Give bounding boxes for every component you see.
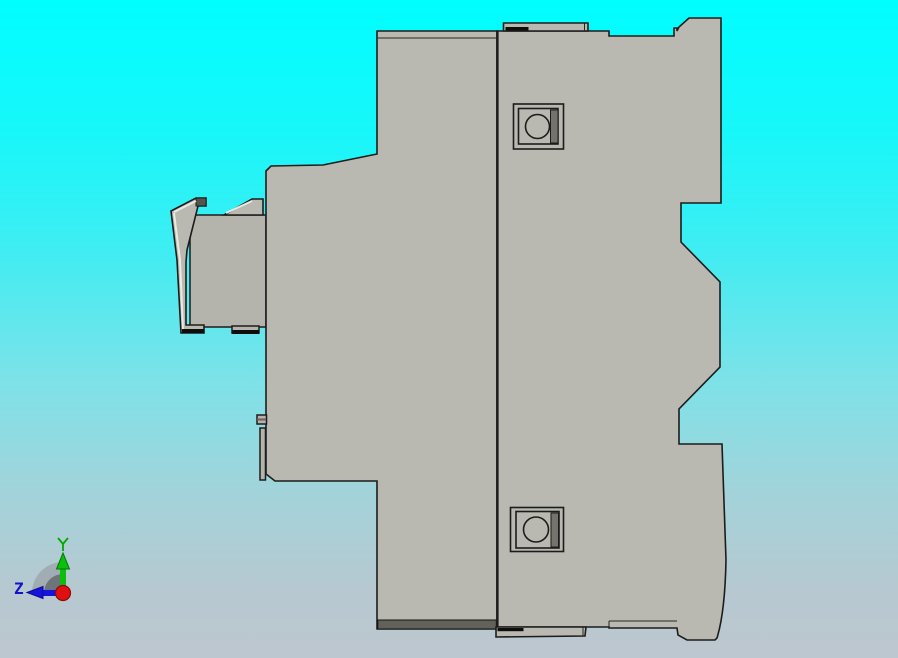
mounting-hole-bottom[interactable] [511, 508, 564, 552]
bottom-rail-tab-slot [498, 628, 524, 631]
cad-scene[interactable]: Z Y [0, 0, 898, 658]
x-axis-origin-icon [56, 586, 71, 601]
clip-hook-foot-shadow [182, 329, 204, 333]
clip-fin-icon[interactable] [224, 199, 263, 215]
clip-yoke-block[interactable] [190, 215, 266, 327]
axis-glyph-y [58, 538, 68, 551]
hole-top-circle[interactable] [526, 115, 550, 139]
body-left-outline[interactable] [266, 31, 497, 629]
hole-bottom-circle[interactable] [524, 517, 549, 542]
viewport-canvas[interactable]: Z Y [0, 0, 898, 658]
left-clip-assembly[interactable] [171, 198, 266, 334]
axis-label-z: Z [14, 579, 24, 598]
mounting-hole-top[interactable] [514, 104, 564, 149]
hole-bottom-side-strip [551, 513, 559, 547]
mid-left-thin-rib[interactable] [260, 428, 266, 480]
orientation-triad: Z Y [14, 538, 74, 601]
body-left-bottom-band [378, 620, 497, 629]
hole-top-side-strip [551, 110, 559, 143]
clip-hook-cap [196, 198, 206, 206]
top-rail-tab-slot [506, 27, 529, 31]
clip-foot-right-shadow [232, 330, 259, 334]
body-left-section[interactable] [257, 31, 497, 629]
